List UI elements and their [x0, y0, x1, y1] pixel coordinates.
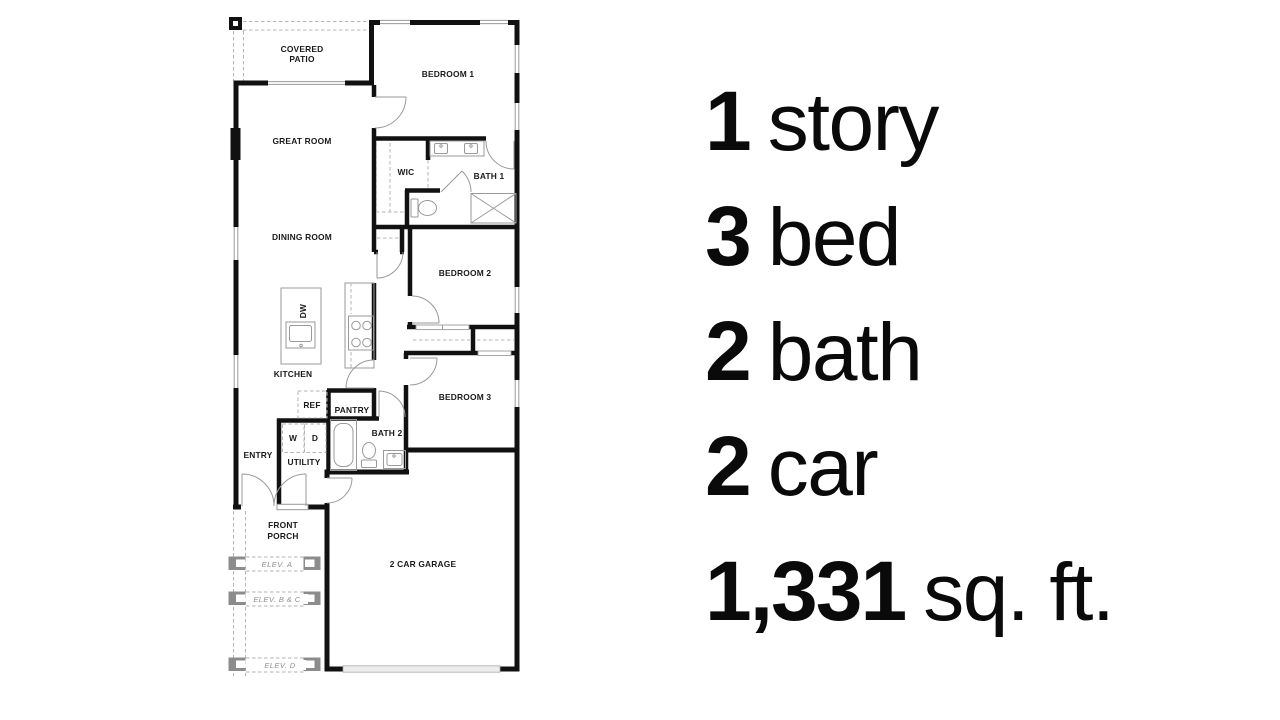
elev-label-a: ELEV. A — [262, 560, 293, 569]
room-label-great-room: GREAT ROOM — [272, 136, 331, 146]
windows — [234, 20, 519, 672]
room-label-pantry: PANTRY — [335, 405, 370, 415]
room-label-kitchen: KITCHEN — [274, 369, 313, 379]
elev-label-bc: ELEV. B & C — [253, 595, 300, 604]
island-sink — [290, 326, 312, 342]
room-label-front-porch-1: FRONT — [268, 520, 299, 530]
room-label-bedroom2: BEDROOM 2 — [439, 268, 492, 278]
floorplan: COVERED PATIO BEDROOM 1 GREAT ROOM WIC B… — [226, 10, 526, 676]
stat-story-value: 1 — [705, 64, 750, 179]
room-label-covered-patio-2: PATIO — [289, 54, 315, 64]
kitchen-counter — [345, 283, 374, 368]
stat-bath-label: bath — [768, 295, 922, 410]
closet-bifold-doors-2 — [478, 351, 511, 356]
garage-door — [343, 666, 500, 672]
room-label-washer: W — [289, 433, 297, 443]
stat-bath-value: 2 — [705, 294, 750, 409]
room-label-utility: UTILITY — [287, 457, 320, 467]
room-label-garage: 2 CAR GARAGE — [390, 559, 457, 569]
stat-sqft: 1,331 sq. ft. — [705, 534, 1113, 649]
room-label-dryer: D — [312, 433, 318, 443]
room-label-entry: ENTRY — [243, 450, 272, 460]
room-label-bath2: BATH 2 — [372, 428, 403, 438]
toilet — [419, 201, 437, 216]
room-label-covered-patio-1: COVERED — [281, 44, 324, 54]
room-label-dishwasher: DW — [298, 304, 308, 318]
stat-bath: 2 bath — [705, 294, 1113, 409]
entry-threshold — [277, 504, 308, 509]
stat-bed: 3 bed — [705, 179, 1113, 294]
floorplan-page: COVERED PATIO BEDROOM 1 GREAT ROOM WIC B… — [0, 0, 1280, 720]
stat-sqft-label: sq. ft. — [923, 535, 1113, 650]
room-label-front-porch-2: PORCH — [267, 531, 298, 541]
kitchen-fixtures — [281, 283, 374, 368]
fireplace-bump — [231, 128, 241, 160]
floorplan-svg: COVERED PATIO BEDROOM 1 GREAT ROOM WIC B… — [226, 10, 526, 676]
stat-car-label: car — [768, 410, 877, 525]
stat-sqft-value: 1,331 — [705, 534, 905, 649]
interior-walls — [277, 85, 517, 510]
room-label-bath1: BATH 1 — [474, 171, 505, 181]
stat-story: 1 story — [705, 64, 1113, 179]
stat-bed-value: 3 — [705, 179, 750, 294]
elev-label-d: ELEV. D — [264, 661, 295, 670]
room-label-dining-room: DINING ROOM — [272, 232, 332, 242]
stat-car-value: 2 — [705, 409, 750, 524]
room-label-ref: REF — [303, 400, 320, 410]
stat-bed-label: bed — [768, 180, 900, 295]
toilet-2 — [363, 443, 376, 459]
stat-car: 2 car — [705, 409, 1113, 524]
room-label-bedroom3: BEDROOM 3 — [439, 392, 492, 402]
stats-panel: 1 story 3 bed 2 bath 2 car 1,331 sq. ft. — [705, 64, 1113, 649]
room-label-bedroom1: BEDROOM 1 — [422, 69, 475, 79]
elevation-markers — [229, 557, 321, 672]
elev-label-underlays — [247, 559, 308, 670]
room-label-wic: WIC — [398, 167, 415, 177]
stat-story-label: story — [768, 65, 938, 180]
patio-porch-dashed-outline — [234, 22, 372, 677]
